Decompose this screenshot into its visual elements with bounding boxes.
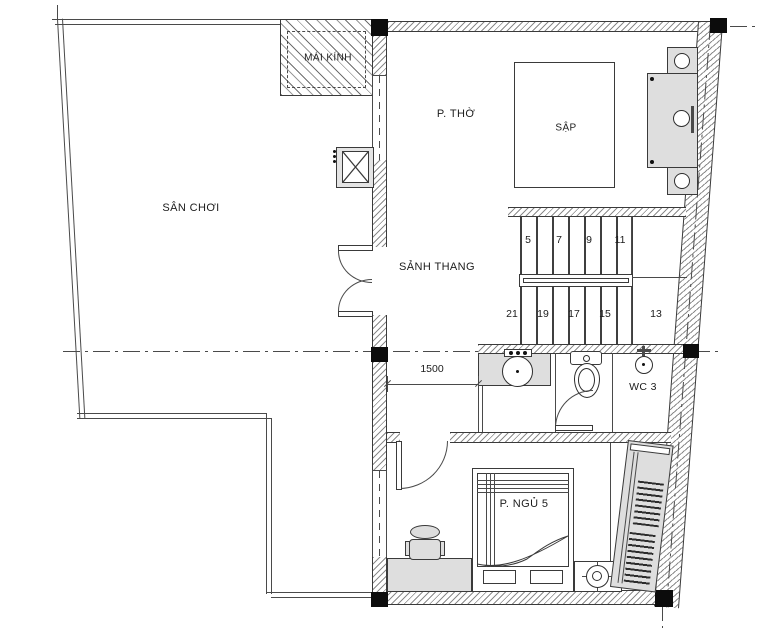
wall-west-b [372,160,387,247]
sink-drain-dot [516,370,519,373]
office-chair-seat [409,539,441,560]
room-label-p-ngu5: P. NGỦ 5 [500,498,549,510]
boundary-step-h2 [77,418,272,419]
wall-south [372,590,664,605]
pillow [530,570,563,584]
boundary-bottom [266,592,374,593]
stair-number: 5 [525,234,531,246]
stair-number: 13 [650,308,662,320]
shower-arm-v [642,346,645,356]
bed-blanket-fold [473,528,573,570]
wardrobe-hangers [633,481,664,528]
stair-number: 7 [556,234,562,246]
bedroom-door-leaf [396,441,402,490]
stair-rail [519,274,633,287]
wardrobe-open-door [630,443,671,455]
column-west-center [371,347,388,362]
altar-corner-dot [650,77,654,81]
faucet-dot [509,351,513,355]
wc-door-leaf [555,425,593,431]
boundary-tick-topleft [57,5,58,19]
stair-number: 9 [586,234,592,246]
stair-number: 19 [537,308,549,320]
stair-number: 11 [615,234,626,246]
column-southwest [371,592,388,607]
dumbwaiter-x-icon [342,151,369,183]
altar-stool-bottom-seat [674,173,690,189]
shower-icon [635,356,653,374]
room-label-wc3: WC 3 [629,381,657,393]
office-chair-arm [405,541,410,556]
wc-door-swing [555,390,593,428]
wall-west-f [372,557,387,593]
centerline-bottom-right [662,604,663,628]
window-west-upper [372,75,387,161]
room-label-mai-kinh: MÁI KÍNH [304,53,352,64]
stair-landing-line [632,277,687,278]
wall-west-d [372,362,387,433]
pillow [483,570,516,584]
double-door-leaf-bottom [338,311,373,317]
column-northeast [710,18,727,33]
wall-north [388,21,714,32]
faucet-dot [523,351,527,355]
boundary-bottom2 [271,597,374,598]
boundary-step-v2 [271,418,272,594]
office-chair-back [410,525,440,539]
column-northwest [371,19,388,36]
floor-drain-icon [586,565,609,588]
column-wc-east [683,344,699,358]
dumbwaiter-dot [333,150,336,153]
stair-number: 17 [568,308,580,320]
room-label-p-tho: P. THỜ [437,108,475,120]
altar-corner-dot [650,160,654,164]
stair-number: 21 [506,308,518,320]
wall-west-e [372,432,387,471]
window-bedroom-west [372,470,387,558]
stair-number: 15 [599,308,611,320]
column-southeast [655,590,673,607]
room-label-sanh-thang: SẢNH THANG [399,261,475,273]
altar-table-bowl [673,110,690,127]
partition-wc-mid2 [612,353,613,432]
faucet-dot [516,351,520,355]
altar-table-bar [691,106,694,133]
stair-rail-inner [523,278,629,283]
toilet-flush-button [583,355,590,362]
wall-west-c [372,315,387,349]
boundary-step-h [77,413,267,414]
room-label-sap: SẬP [555,123,576,134]
dimension-text: 1500 [420,363,443,375]
boundary-step-v [266,413,267,594]
floor-drain-inner [592,571,602,581]
wardrobe-hangers [623,532,655,587]
toilet-bowl-inner [578,368,595,392]
double-door-swing-bottom [338,279,372,311]
boundary-line-left [57,19,85,419]
room-label-san-choi: SÂN CHƠI [162,202,219,214]
altar-stool-top-seat [674,53,690,69]
double-door-swing-top [338,251,372,283]
floor-plan: 5 7 9 11 21 19 17 15 13 [0,0,760,639]
office-chair-arm [440,541,445,556]
bedroom-door-swing [399,441,448,489]
shower-dot [642,363,645,366]
wall-west-a [372,36,387,76]
desk [387,558,472,592]
dumbwaiter-dot [333,160,336,163]
dimension-line [387,384,479,385]
dumbwaiter-dot [333,155,336,158]
